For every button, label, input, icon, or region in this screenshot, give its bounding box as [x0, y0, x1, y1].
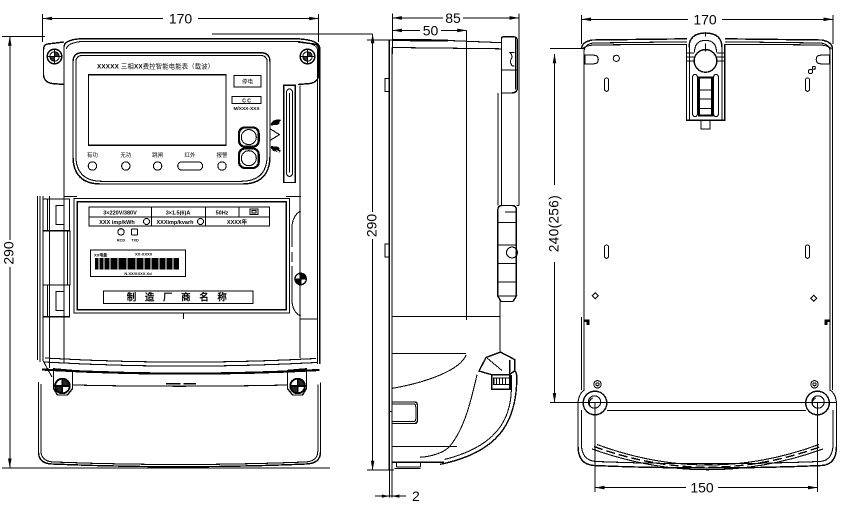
svg-text:M/XXX-XXX: M/XXX-XXX: [233, 106, 260, 112]
svg-text:50Hz: 50Hz: [216, 211, 229, 217]
svg-text:XXXX年: XXXX年: [227, 218, 248, 226]
svg-text:制 造 厂 商 名 称: 制 造 厂 商 名 称: [127, 292, 230, 304]
svg-text:50: 50: [423, 22, 439, 38]
svg-text:290: 290: [1, 241, 17, 265]
svg-text:有功: 有功: [87, 151, 99, 159]
svg-text:跳闸: 跳闸: [152, 151, 163, 159]
svg-text:红外: 红外: [184, 151, 196, 159]
svg-text:XX-XXXX: XX-XXXX: [135, 252, 153, 257]
svg-text:2: 2: [412, 488, 420, 504]
svg-text:150: 150: [690, 480, 714, 496]
svg-text:XXXimp/kvarh: XXXimp/kvarh: [157, 220, 195, 226]
svg-text:290: 290: [363, 214, 379, 238]
svg-text:无功: 无功: [120, 151, 132, 159]
svg-text:TXD: TXD: [131, 239, 139, 243]
svg-text:XXX imp/kWh: XXX imp/kWh: [99, 220, 135, 226]
svg-text:240(256): 240(256): [547, 195, 562, 252]
svg-text:170: 170: [169, 11, 193, 27]
svg-text:3×1.5(6)A: 3×1.5(6)A: [166, 211, 191, 217]
svg-text:报警: 报警: [216, 151, 228, 159]
svg-text:85: 85: [445, 10, 461, 26]
svg-text:RCD: RCD: [117, 239, 125, 243]
svg-text:XXXXX 三相XX费控智能电能表（载波）: XXXXX 三相XX费控智能电能表（载波）: [97, 61, 214, 70]
svg-text:170: 170: [693, 11, 717, 27]
svg-text:3×220V/380V: 3×220V/380V: [103, 211, 137, 217]
svg-text:N.XX/XXXX.Xd: N.XX/XXXX.Xd: [124, 271, 152, 276]
svg-text:停电: 停电: [242, 78, 254, 86]
svg-text:C C: C C: [242, 98, 251, 104]
svg-text:XX电能: XX电能: [94, 252, 107, 258]
